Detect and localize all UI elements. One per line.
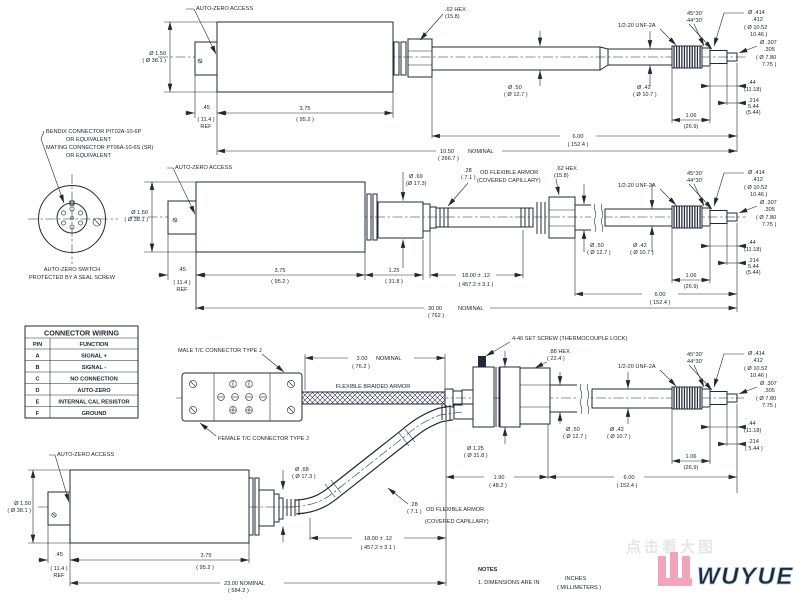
view-flex-armor-transducer: AUTO-ZERO ACCESS Ø 1.50 ( Ø 38.1 ) .45 (…	[124, 165, 776, 319]
dim-dia50: Ø .50	[566, 427, 580, 433]
male-tc-label: MALE T/C CONNECTOR TYPE J	[178, 348, 262, 354]
dim-375: ( 95.2 )	[296, 117, 314, 123]
view-bottom-transducer: AUTO-ZERO ACCESS Ø 1.50 ( Ø 38.1 ) .45 (…	[7, 452, 446, 594]
technical-drawing: 1/2-20 UNF-2A 45°30' 44°30' Ø .414 .412 …	[0, 0, 796, 609]
dim-214: ( 5.44 )	[745, 446, 763, 452]
armor-callout: (COVERED CAPILLARY)	[425, 519, 489, 525]
dim-dia150: ( Ø 38.1 )	[142, 58, 166, 64]
view-rigid-stem-transducer: AUTO-ZERO ACCESS Ø 1.50 ( Ø 38.1 ) .45 (…	[142, 6, 776, 162]
dim-125: ( 31.8 )	[385, 279, 403, 285]
set-screw-label: 4-40 SET SCREW (THERMOCOUPLE LOCK)	[512, 336, 627, 342]
flexible-capillary-bend: .28 ( 7.1 ) OD FLEXIBLE ARMOR (COVERED C…	[287, 404, 489, 525]
dim-214: (5.44)	[746, 110, 761, 116]
dim-3000: NOMINAL	[458, 306, 484, 312]
dim-600: ( 152.4 )	[650, 300, 671, 306]
dim-375: 3.75	[275, 268, 286, 274]
dim-1800: 18.00 ± .12	[462, 273, 490, 279]
dim-2300: ( 584.2 )	[228, 588, 249, 594]
dim-045ref: REF	[53, 573, 65, 579]
armor-callout: OD FLEXIBLE ARMOR	[480, 170, 538, 176]
dim-dia150: ( Ø 38.1 )	[124, 217, 148, 223]
notes-title: NOTES	[478, 567, 498, 573]
dim-dia125: ( Ø 31.8 )	[464, 453, 488, 459]
dim-600: 6.00	[655, 292, 666, 298]
dim-dia150: Ø 1.50	[14, 501, 31, 507]
table-cell-pin: F	[36, 411, 40, 417]
table-cell-function: INTERNAL CAL RESISTOR	[58, 400, 129, 406]
autozero-access-label: AUTO-ZERO ACCESS	[57, 452, 114, 458]
armor-callout: (COVERED CAPILLARY)	[477, 178, 541, 184]
dim-600: 6.00	[573, 134, 584, 140]
dim-dia50: Ø .50	[508, 85, 522, 91]
bendix-callout: OR EQUIVALENT	[66, 137, 112, 143]
hex-callout: (15.8)	[445, 14, 460, 20]
female-tc-label: FEMALE T/C CONNECTOR TYPE J	[218, 436, 309, 442]
dim-dia50: ( Ø 12.7 )	[504, 92, 528, 98]
table-cell-function: SIGNAL +	[81, 354, 108, 360]
dim-dia42: Ø .42	[610, 427, 624, 433]
dim-300nom: NOMINAL	[376, 356, 402, 362]
wuyue-logo-mark	[658, 552, 692, 586]
table-cell-function: SIGNAL -	[82, 365, 107, 371]
dim-1050: 10.50	[440, 149, 454, 155]
wuyue-logo-text: WUYUE	[697, 563, 794, 590]
dim-300nom: ( 76.2 )	[352, 364, 370, 370]
notes-units-mm: ( MILLIMETERS )	[557, 585, 601, 591]
dim-dia69: Ø .69	[409, 174, 423, 180]
dim-1800: 18.00 ± .12	[364, 536, 392, 542]
dim-1050: ( 266.7 )	[438, 156, 459, 162]
table-cell-pin: A	[35, 354, 39, 360]
dim-300nom: 3.00	[357, 356, 368, 362]
autozero-switch-caption: PROTECTED BY A SEAL SCREW	[29, 275, 116, 281]
dim-dia50: Ø .50	[590, 243, 604, 249]
armor-callout: .28	[464, 168, 472, 174]
autozero-access-label: AUTO-ZERO ACCESS	[196, 6, 253, 12]
bendix-callout: MATING CONNECTOR PT06A-10-6S (SR)	[46, 145, 153, 151]
hex-callout: .62 HEX	[556, 166, 577, 172]
dim-045ref: ( 11.4 )	[50, 566, 67, 572]
dim-dia125: Ø 1.25	[467, 446, 484, 452]
table-cell-function: GROUND	[82, 411, 107, 417]
bendix-callout: OR EQUIVALENT	[66, 153, 112, 159]
table-header-function: FUNCTION	[80, 342, 109, 348]
dim-1800: ( 457.2 ± 3.1 )	[361, 545, 396, 551]
dim-1800: ( 457.2 ± 3.1 )	[459, 282, 494, 288]
dim-045ref: .45	[55, 552, 63, 558]
dim-045ref: .45	[202, 105, 210, 111]
dim-2300: 23.00 NOMINAL	[224, 581, 265, 587]
dim-1050: NOMINAL	[468, 149, 494, 155]
notes-units-inches: INCHES	[565, 576, 586, 582]
armor-callout: ( 7.1 )	[461, 175, 476, 181]
hex88-callout: ( 22.4 )	[547, 356, 565, 362]
table-cell-function: NO CONNECTION	[70, 377, 118, 383]
dim-3000: ( 762 )	[428, 313, 444, 319]
dim-600: 6.00	[624, 475, 635, 481]
dim-dia69: (Ø 17.3)	[406, 181, 427, 187]
bendix-callout: BENDIX CONNECTOR PIT02A-10-6P	[46, 129, 142, 135]
autozero-switch-caption: AUTO-ZERO SWITCH	[44, 267, 100, 273]
armor-callout: .28	[410, 502, 418, 508]
armor-callout: ( 7.1 )	[407, 509, 422, 515]
dim-125: 1.25	[389, 268, 400, 274]
footer-branding: 点击看大图 WUYUE	[626, 538, 794, 590]
dim-375: 3.75	[300, 106, 311, 112]
table-header-pin: PIN	[33, 342, 42, 348]
dim-190: 1.90	[494, 475, 505, 481]
table-cell-function: AUTO-ZERO	[77, 388, 111, 394]
hex88-callout: .88 HEX	[549, 349, 570, 355]
dim-045ref: ( 11.4 )	[173, 280, 190, 286]
table-cell-pin: D	[35, 388, 39, 394]
dim-dia42: Ø .42	[633, 243, 647, 249]
hex-callout: .62 HEX	[445, 7, 466, 13]
dim-dia42: Ø .42	[637, 85, 651, 91]
dim-600: ( 152.4 )	[568, 142, 589, 148]
dim-dia42: ( Ø 10.7 )	[607, 434, 631, 440]
notes-item-1: 1. DIMENSIONS ARE IN	[478, 580, 540, 586]
dim-dia42: ( Ø 10.7 )	[633, 92, 657, 98]
dim-dia150: ( Ø 38.1 )	[7, 508, 31, 514]
dim-045ref: ( 11.4 )	[197, 117, 214, 123]
dim-045ref: REF	[176, 287, 188, 293]
drawing-sheet: 1/2-20 UNF-2A 45°30' 44°30' Ø .414 .412 …	[0, 0, 796, 609]
dim-dia50: ( Ø 12.7 )	[587, 250, 611, 256]
dim-190: ( 48.2 )	[489, 483, 507, 489]
dim-045ref: .45	[178, 267, 186, 273]
table-cell-pin: B	[35, 365, 39, 371]
dim-dia68: ( Ø 17.3 )	[292, 474, 316, 480]
dim-375: ( 95.2 )	[196, 565, 214, 571]
autozero-access-label: AUTO-ZERO ACCESS	[175, 165, 232, 171]
table-title: CONNECTOR WIRING	[44, 329, 119, 338]
dim-214: (5.44)	[746, 270, 761, 276]
dim-3000: 30.00	[428, 306, 442, 312]
dim-dia150: Ø 1.50	[131, 210, 148, 216]
dim-045ref: REF	[200, 124, 212, 130]
connector-wiring-table: CONNECTOR WIRING PIN FUNCTION A SIGNAL +…	[25, 326, 138, 418]
dim-dia150: Ø 1.50	[149, 51, 166, 57]
view-connector-face: BENDIX CONNECTOR PIT02A-10-6P OR EQUIVAL…	[28, 129, 153, 281]
table-cell-pin: E	[36, 400, 40, 406]
dim-dia68: Ø .68	[295, 467, 309, 473]
table-cell-pin: C	[35, 377, 39, 383]
armor-callout: OD FLEXIBLE ARMOR	[426, 507, 484, 513]
dim-600: ( 152.4 )	[617, 483, 638, 489]
braided-armor-label: FLEXIBLE BRAIDED ARMOR	[336, 384, 411, 390]
dim-dia42: ( Ø 10.7 )	[630, 250, 654, 256]
dim-dia50: ( Ø 12.7 )	[563, 434, 587, 440]
dim-214: .214	[748, 439, 759, 445]
dim-375: ( 95.2 )	[271, 279, 289, 285]
hex-callout: (15.8)	[554, 173, 569, 179]
dim-375: 3.75	[201, 553, 212, 559]
notes-block: NOTES 1. DIMENSIONS ARE IN INCHES ( MILL…	[478, 567, 601, 591]
